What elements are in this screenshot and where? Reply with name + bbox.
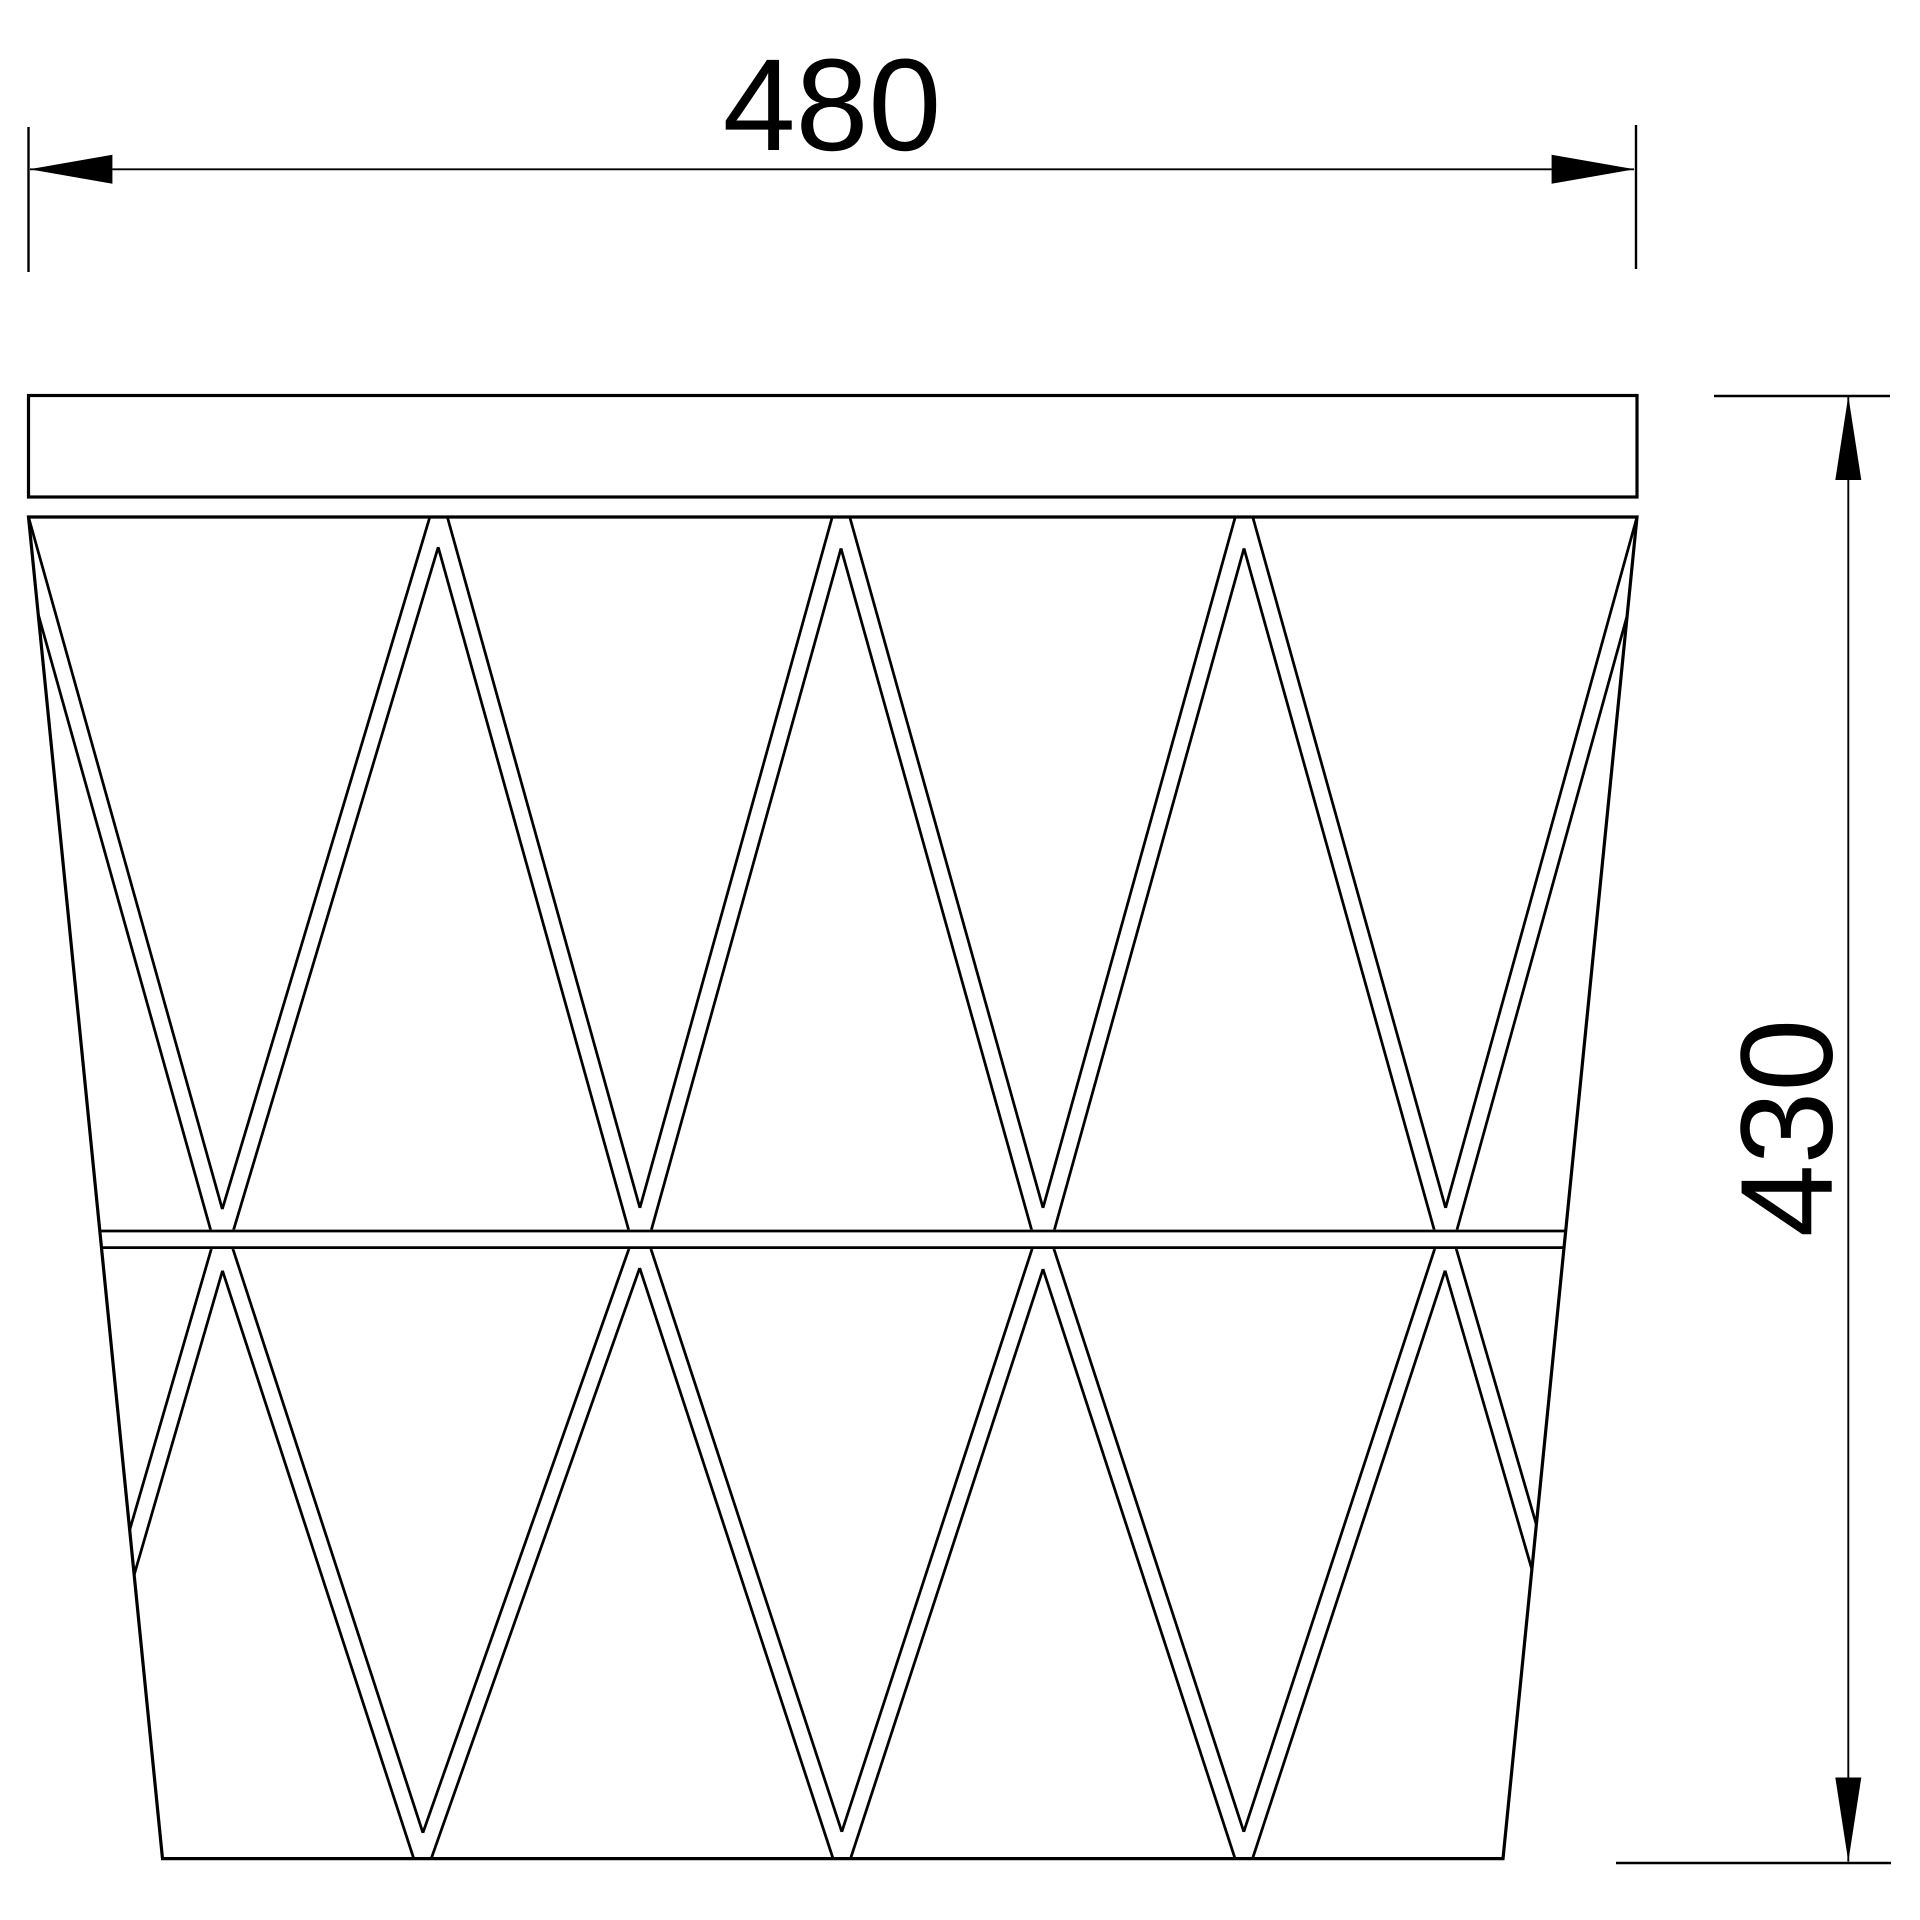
svg-text:430: 430	[1713, 1019, 1860, 1238]
svg-text:480: 480	[723, 31, 942, 178]
